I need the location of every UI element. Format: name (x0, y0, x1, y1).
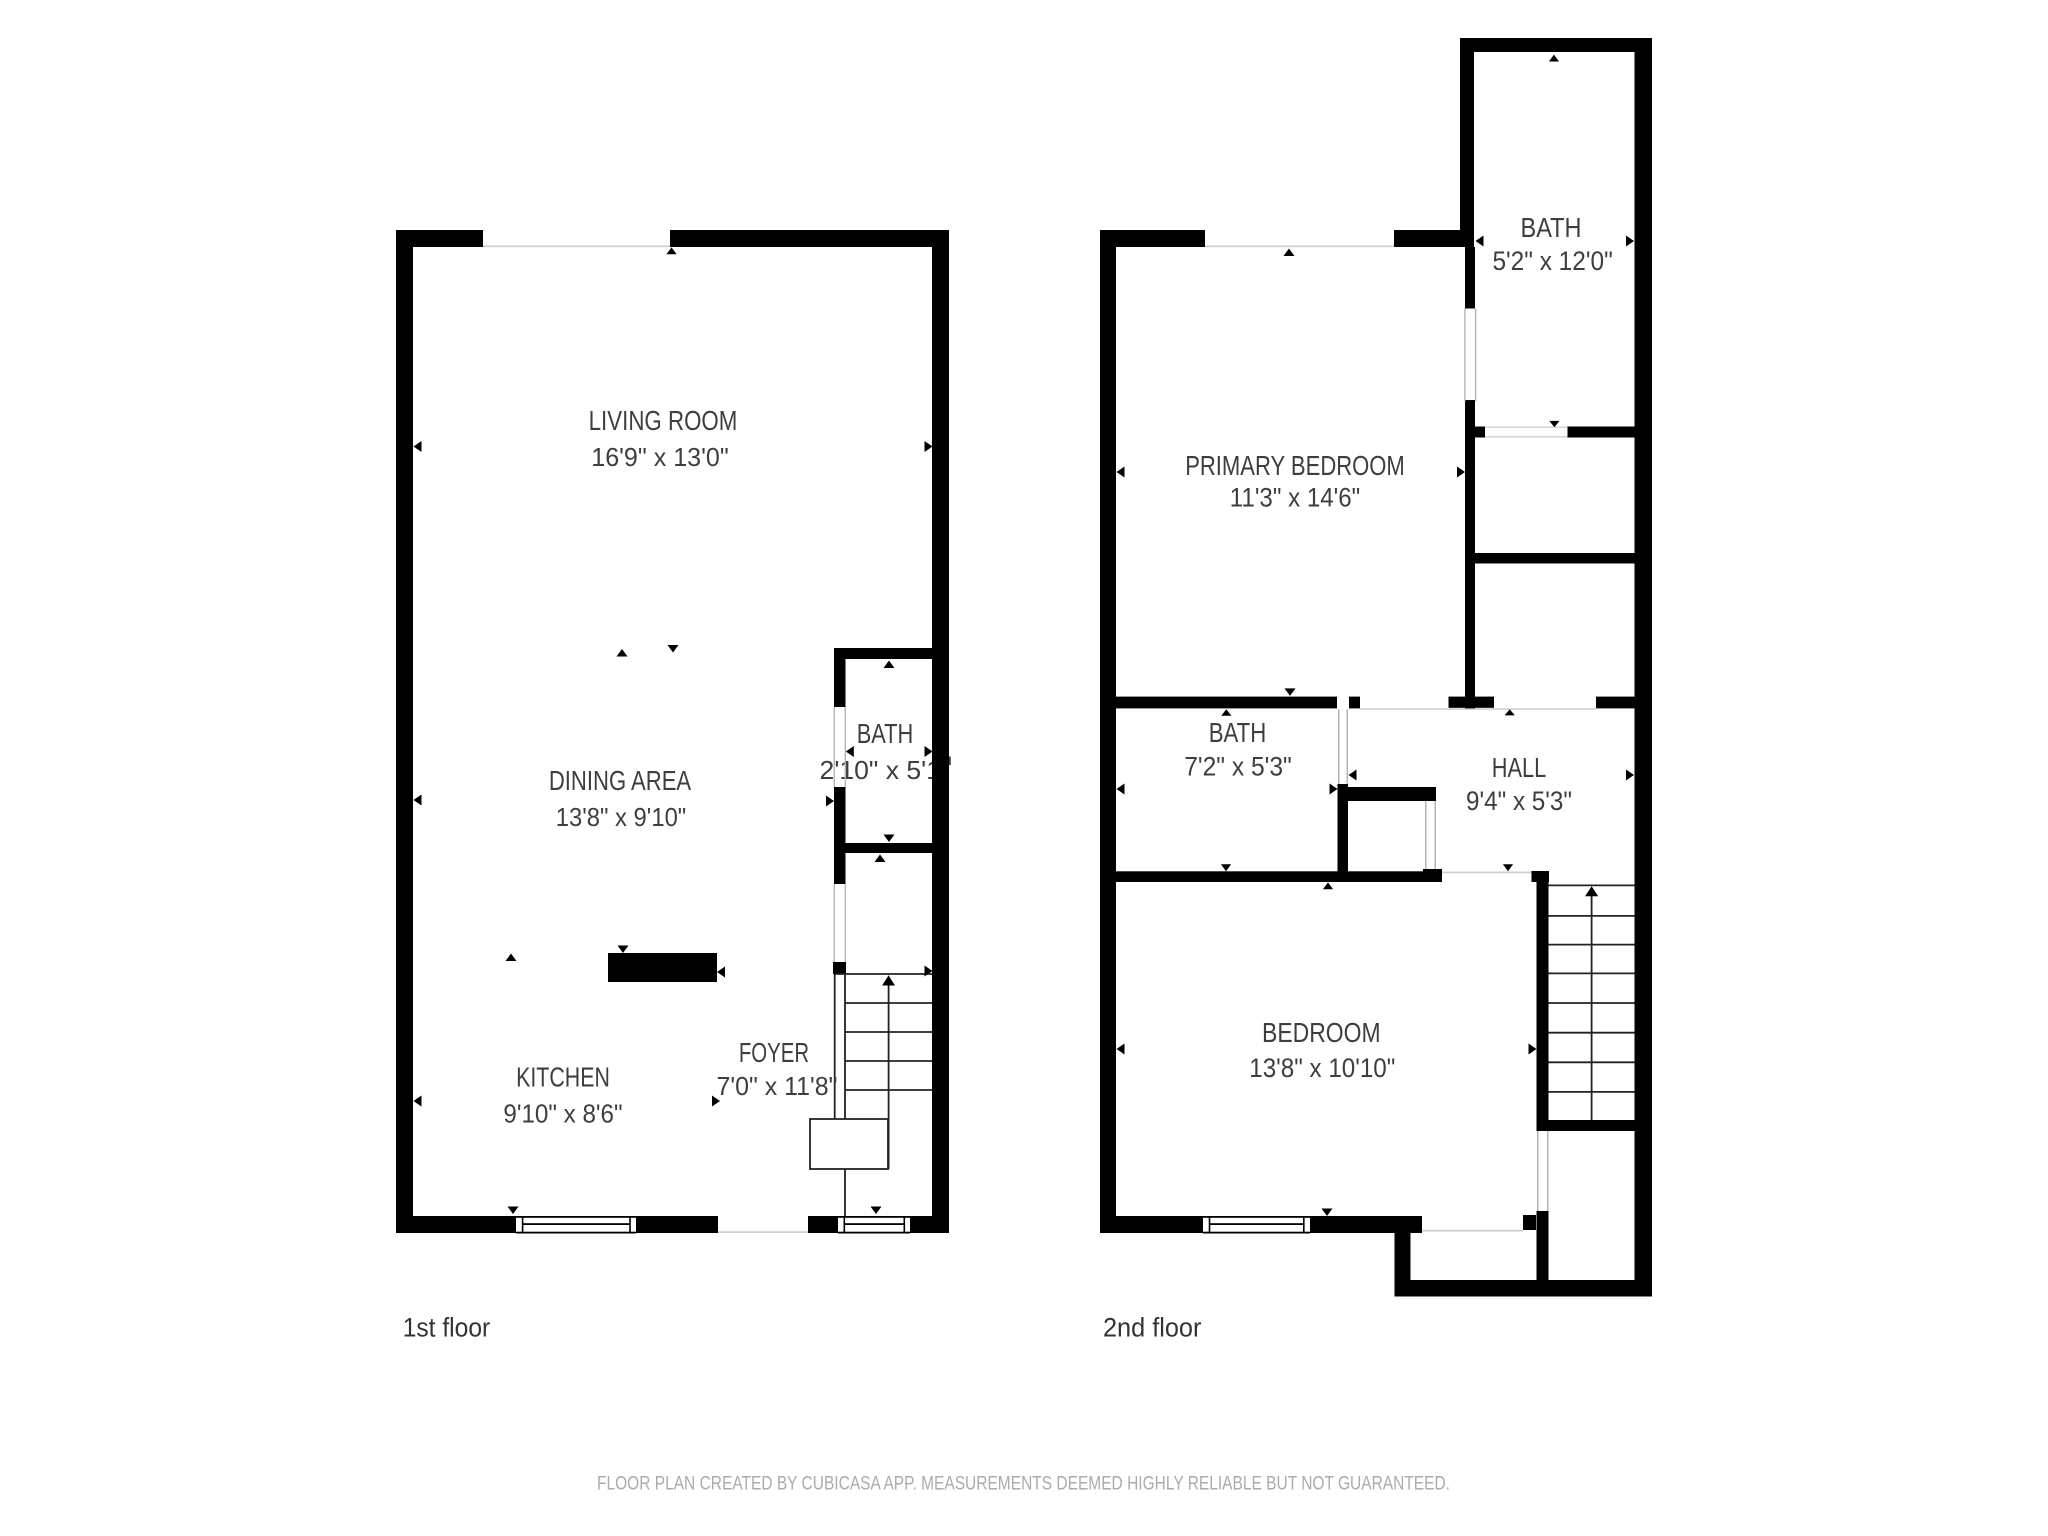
svg-text:FOYER: FOYER (739, 1037, 809, 1068)
svg-text:7'2" x 5'3": 7'2" x 5'3" (1184, 751, 1292, 781)
svg-text:9'4" x 5'3": 9'4" x 5'3" (1466, 786, 1572, 816)
svg-text:DINING AREA: DINING AREA (549, 765, 692, 796)
svg-text:2'10" x 5'1": 2'10" x 5'1" (820, 755, 951, 785)
svg-text:16'9" x 13'0": 16'9" x 13'0" (591, 442, 729, 472)
svg-text:9'10" x 8'6": 9'10" x 8'6" (503, 1099, 622, 1129)
svg-text:LIVING ROOM: LIVING ROOM (589, 405, 738, 436)
svg-text:FLOOR PLAN CREATED BY CUBICASA: FLOOR PLAN CREATED BY CUBICASA APP. MEAS… (597, 1474, 1450, 1495)
svg-text:13'8" x 10'10": 13'8" x 10'10" (1249, 1053, 1395, 1083)
svg-text:BATH: BATH (1209, 717, 1267, 748)
svg-text:2nd floor: 2nd floor (1103, 1312, 1201, 1342)
svg-text:BEDROOM: BEDROOM (1262, 1017, 1381, 1048)
svg-text:BATH: BATH (1521, 212, 1582, 243)
svg-text:13'8" x 9'10": 13'8" x 9'10" (556, 802, 687, 832)
svg-text:7'0" x 11'8": 7'0" x 11'8" (717, 1071, 838, 1101)
svg-text:KITCHEN: KITCHEN (516, 1062, 610, 1093)
svg-text:11'3" x 14'6": 11'3" x 14'6" (1230, 483, 1360, 513)
svg-text:5'2" x 12'0": 5'2" x 12'0" (1492, 246, 1612, 276)
svg-text:1st floor: 1st floor (403, 1312, 491, 1342)
svg-text:BATH: BATH (857, 718, 914, 749)
svg-text:PRIMARY BEDROOM: PRIMARY BEDROOM (1185, 450, 1405, 481)
svg-text:HALL: HALL (1492, 752, 1547, 783)
